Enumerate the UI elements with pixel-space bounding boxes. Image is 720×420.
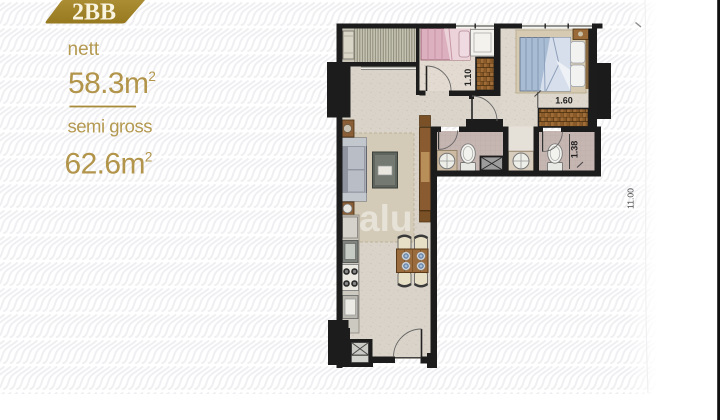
svg-text:11.00: 11.00	[626, 188, 636, 209]
svg-text:semi gross: semi gross	[68, 115, 153, 136]
svg-text:1.10: 1.10	[463, 69, 473, 87]
svg-text:alu: alu	[359, 198, 412, 239]
svg-text:2BB: 2BB	[72, 0, 116, 26]
svg-text:58.3m2: 58.3m2	[68, 67, 156, 100]
svg-text:1.60: 1.60	[555, 96, 573, 106]
svg-text:1.38: 1.38	[570, 141, 580, 159]
svg-text:62.6m2: 62.6m2	[65, 148, 153, 181]
svg-text:nett: nett	[68, 39, 100, 60]
